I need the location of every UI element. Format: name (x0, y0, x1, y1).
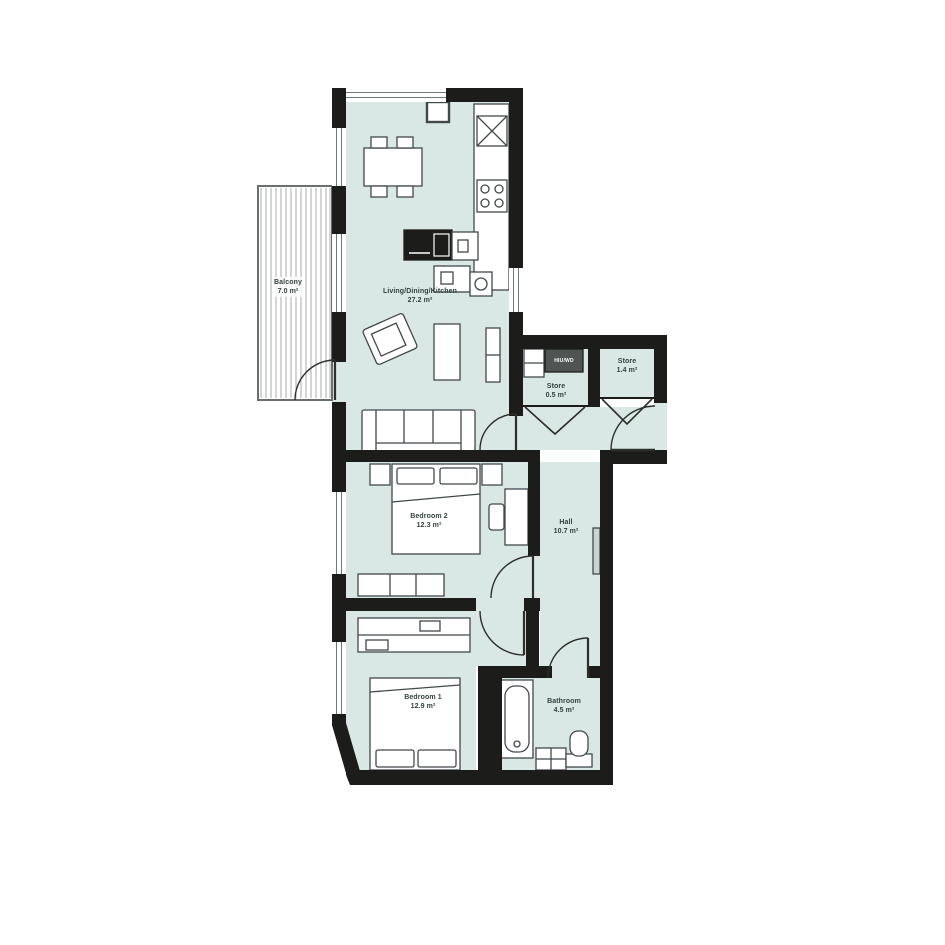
window (332, 642, 346, 714)
utility-label-text: HIU/WD (554, 358, 574, 364)
hall-floor (540, 462, 600, 666)
room-label-living: Living/Dining/Kitchen 27.2 m² (383, 287, 457, 305)
desk (505, 489, 528, 545)
wall-segment (478, 666, 502, 770)
room-area: 12.9 m² (404, 702, 441, 711)
wall-segment (654, 335, 667, 403)
bathroom-door-gap (552, 666, 588, 678)
room-area: 27.2 m² (383, 296, 457, 305)
wall-segment (524, 598, 540, 611)
room-area: 4.5 m² (547, 706, 581, 715)
window (346, 88, 446, 102)
wall-segment (526, 611, 539, 666)
wall-segment (332, 402, 346, 462)
wall-segment (528, 462, 540, 556)
wall-segment (346, 598, 476, 611)
dining-chair (397, 186, 413, 197)
window (332, 128, 346, 186)
bedroom1-vestibule-floor (476, 611, 526, 666)
wall-segment (332, 574, 346, 642)
bedroom1-bed (370, 678, 460, 770)
room-name: Bedroom 2 (410, 513, 447, 520)
bedroom1-door-gap (476, 598, 524, 611)
radiator (593, 528, 600, 574)
wall-segment (332, 462, 346, 492)
room-name: Bathroom (547, 698, 581, 705)
wall-segment (332, 88, 346, 128)
room-label-hall: Hall 10.7 m² (554, 518, 579, 536)
dining-chair (371, 137, 387, 148)
sideboard (358, 574, 444, 596)
sofa (362, 410, 475, 452)
utility-unit-label: HIU/WD (554, 358, 574, 365)
room-area: 1.4 m² (617, 366, 638, 375)
entrance-threshold-floor (654, 403, 667, 450)
toilet (566, 731, 592, 767)
room-name: Hall (559, 519, 572, 526)
kitchen-stool (470, 272, 492, 296)
room-area: 7.0 m² (274, 287, 302, 296)
wall-segment (498, 666, 552, 678)
wall-segment (332, 186, 346, 234)
bathtub (501, 680, 533, 758)
nightstand (370, 464, 390, 485)
wall-segment (588, 666, 600, 678)
window (332, 492, 346, 574)
pillow (418, 750, 456, 767)
coffee-table (434, 324, 460, 380)
room-name: Living/Dining/Kitchen (383, 288, 457, 295)
wall-segment (600, 450, 613, 785)
room-label-store-large: Store 1.4 m² (617, 357, 638, 375)
wall-segment (588, 335, 600, 407)
room-area: 0.5 m² (546, 391, 567, 400)
hob (477, 180, 507, 212)
room-name: Bedroom 1 (404, 694, 441, 701)
kitchen-island-oven (404, 230, 452, 260)
media-unit (486, 328, 500, 382)
bedroom2-bed (392, 464, 480, 554)
bedroom1-wardrobe (358, 618, 470, 652)
entrance-lobby-floor (523, 407, 654, 450)
room-area: 10.7 m² (554, 527, 579, 536)
floor-plan-drawing (0, 0, 945, 945)
bathroom-sink (536, 748, 566, 770)
nightstand (482, 464, 502, 485)
wall-segment (332, 312, 346, 362)
store-shelf-unit (524, 349, 544, 377)
room-label-bedroom2: Bedroom 2 12.3 m² (410, 512, 447, 530)
pillow (397, 468, 434, 484)
service-duct (427, 102, 449, 122)
room-label-balcony: Balcony 7.0 m² (272, 277, 304, 297)
room-area: 12.3 m² (410, 521, 447, 530)
room-name: Store (547, 383, 565, 390)
room-label-store-small: Store 0.5 m² (546, 382, 567, 400)
room-label-bathroom: Bathroom 4.5 m² (547, 697, 581, 715)
window (332, 234, 346, 312)
room-name: Balcony (274, 279, 302, 286)
wall-segment (346, 450, 540, 462)
pillow (440, 468, 477, 484)
kitchen-unit (452, 232, 478, 260)
wall-segment (346, 770, 613, 785)
floor-plan-canvas: Balcony 7.0 m² Living/Dining/Kitchen 27.… (0, 0, 945, 945)
pillow (376, 750, 414, 767)
room-name: Store (618, 358, 636, 365)
desk-chair (489, 504, 504, 530)
room-label-bedroom1: Bedroom 1 12.9 m² (404, 693, 441, 711)
dining-chair (371, 186, 387, 197)
window (509, 268, 523, 312)
kitchen-sink (477, 116, 507, 146)
wall-segment (509, 340, 523, 416)
dining-chair (397, 137, 413, 148)
